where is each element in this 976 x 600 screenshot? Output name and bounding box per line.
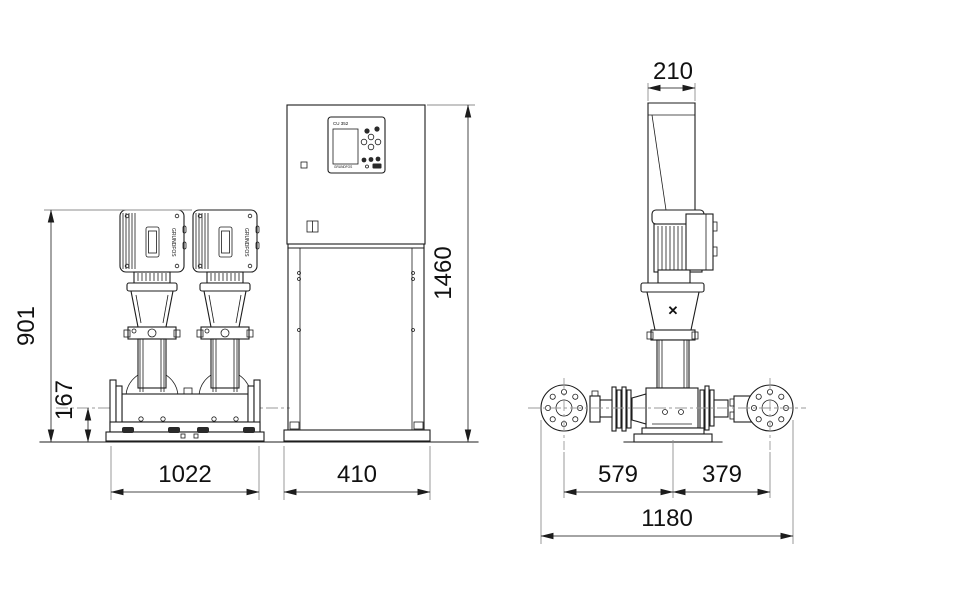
dim-pipe-center-height: 167 [51, 380, 88, 442]
dim-cabinet-width: 410 [284, 446, 430, 500]
discharge-pipe [714, 400, 728, 417]
technical-drawing: GRUNDFOS [0, 0, 976, 600]
dim-label-1180: 1180 [641, 505, 693, 532]
motor-stool-flange [127, 283, 177, 291]
fan-adapter-side [658, 270, 690, 283]
dim-center-to-discharge: 379 [673, 461, 770, 492]
motor-stool-flange [200, 283, 250, 291]
panel-brand-text: GRUNDFOS [334, 165, 352, 169]
clamp-foot [197, 427, 209, 433]
clamp-foot [243, 427, 255, 433]
motor-brand-text: GRUNDFOS [170, 228, 176, 257]
dim-label-579: 579 [598, 461, 638, 488]
clamp-foot [168, 427, 180, 433]
dim-label-1460: 1460 [430, 246, 457, 299]
suction-fitting [590, 396, 600, 422]
front-view: GRUNDFOS [13, 210, 478, 500]
grundfos-logo-icon: ✕ [668, 303, 679, 318]
manifold-pipe [122, 394, 248, 422]
panel-button[interactable] [364, 128, 369, 133]
dim-cabinet-depth: 210 [648, 58, 695, 101]
dim-label-901: 901 [13, 306, 40, 346]
corner-bracket [414, 422, 423, 429]
controller-panel: CU 352 GRUNDFOS [328, 117, 385, 173]
motor-stool [204, 291, 246, 327]
cabinet-base-plate [284, 430, 430, 441]
chamber-stack [211, 339, 239, 388]
panel-button[interactable] [362, 158, 367, 163]
dim-label-167: 167 [51, 380, 78, 420]
coupling-stack [612, 387, 616, 431]
dim-label-379: 379 [702, 461, 742, 488]
dim-front-width: 1022 [111, 446, 259, 500]
motor-side [652, 210, 717, 283]
terminal-box [686, 214, 713, 270]
panel-button[interactable] [374, 126, 379, 131]
dim-label-1022: 1022 [158, 461, 211, 488]
motor-stool [131, 291, 173, 327]
side-view: 210 ✕ [528, 58, 806, 544]
fan-adapter [134, 272, 170, 283]
dim-label-410: 410 [337, 461, 377, 488]
panel-button[interactable] [376, 157, 381, 162]
cabinet-view: CU 352 GRUNDFOS 1460 [284, 105, 475, 500]
motor-brand-text: GRUNDFOS [243, 228, 249, 257]
dim-label-210: 210 [653, 58, 693, 85]
manifold-tab [184, 388, 192, 394]
panel-button[interactable] [369, 157, 374, 162]
stool-flange-side [641, 283, 704, 292]
fan-adapter [207, 272, 243, 283]
reducer-cone [632, 394, 646, 424]
baseframe [106, 422, 264, 441]
clamp-foot [122, 427, 134, 433]
dim-cabinet-height: 1460 [427, 105, 475, 442]
panel-indicator [373, 164, 382, 169]
chamber-stack [138, 339, 166, 388]
dimensional-drawing-page: GRUNDFOS [0, 0, 976, 600]
controller-label: CU 352 [333, 121, 349, 126]
pump-unit-1: GRUNDFOS [120, 210, 186, 423]
suction-pipe [600, 400, 612, 417]
corner-bracket [290, 422, 299, 429]
pedestal-step [642, 428, 704, 434]
pump-head-side [651, 330, 695, 340]
